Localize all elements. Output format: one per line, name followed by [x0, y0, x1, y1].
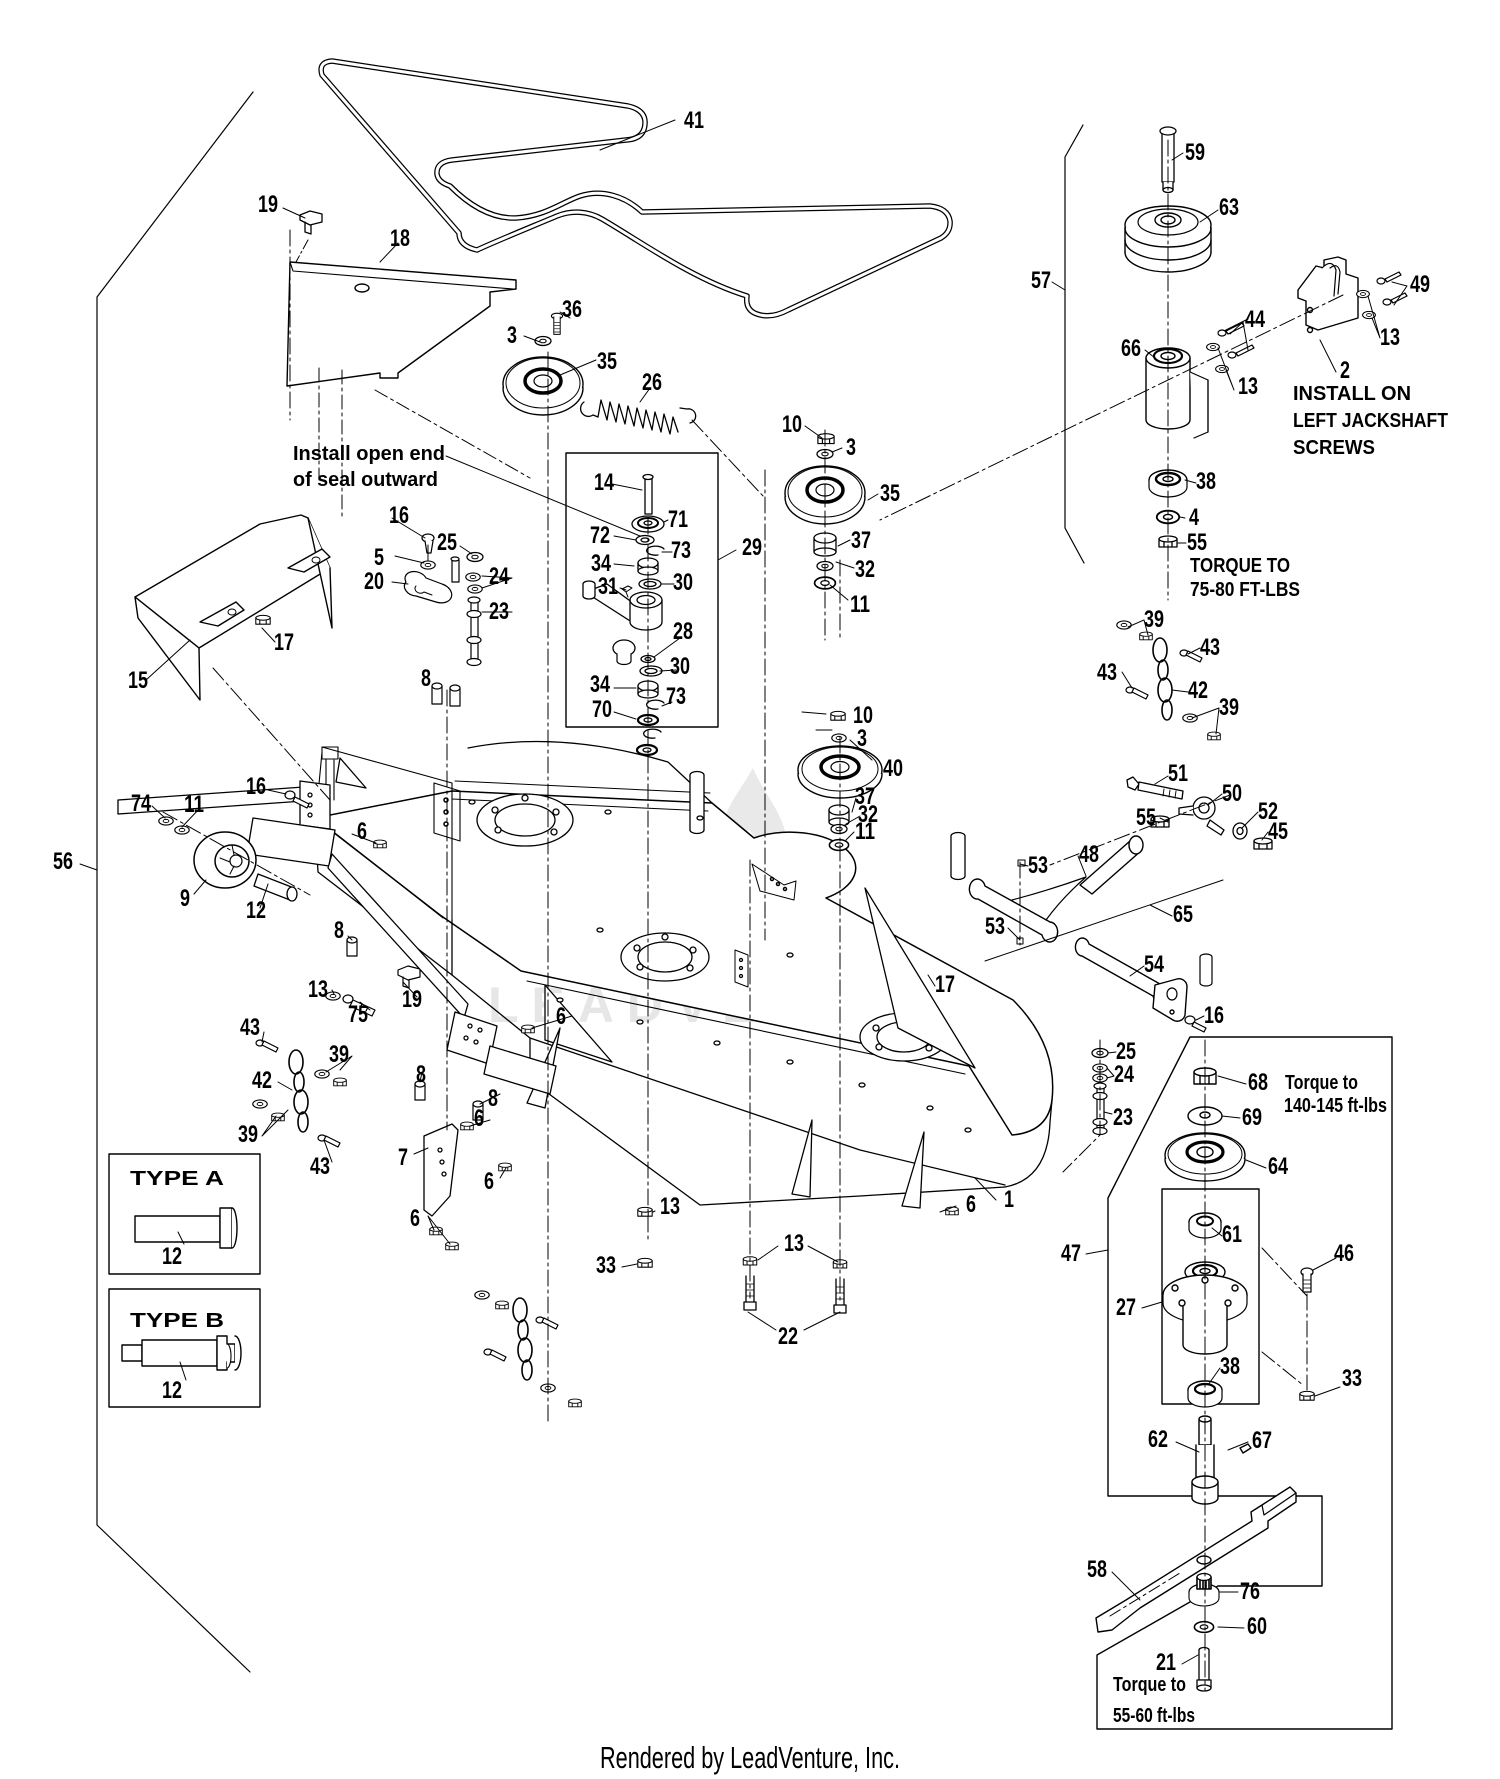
- svg-text:62: 62: [1148, 1426, 1168, 1453]
- svg-text:9: 9: [180, 885, 190, 912]
- svg-text:12: 12: [162, 1243, 182, 1270]
- svg-text:19: 19: [402, 986, 422, 1013]
- svg-text:50: 50: [1222, 780, 1242, 807]
- svg-text:17: 17: [935, 971, 955, 998]
- svg-text:11: 11: [855, 818, 875, 845]
- svg-text:25: 25: [437, 529, 457, 556]
- svg-text:15: 15: [128, 667, 148, 694]
- svg-text:26: 26: [642, 369, 662, 396]
- svg-text:10: 10: [782, 411, 802, 438]
- svg-text:7: 7: [398, 1144, 408, 1171]
- svg-text:64: 64: [1268, 1153, 1288, 1180]
- svg-text:13: 13: [1380, 324, 1400, 351]
- svg-text:43: 43: [310, 1153, 330, 1180]
- svg-text:6: 6: [474, 1105, 484, 1132]
- svg-text:39: 39: [1219, 694, 1239, 721]
- svg-text:60: 60: [1247, 1613, 1267, 1640]
- svg-text:of seal outward: of seal outward: [293, 469, 438, 491]
- svg-text:57: 57: [1031, 267, 1051, 294]
- svg-text:6: 6: [966, 1191, 976, 1218]
- svg-text:29: 29: [742, 534, 762, 561]
- svg-text:16: 16: [1204, 1002, 1224, 1029]
- svg-text:42: 42: [252, 1067, 272, 1094]
- svg-text:37: 37: [851, 527, 871, 554]
- svg-text:54: 54: [1144, 951, 1164, 978]
- svg-text:16: 16: [246, 773, 266, 800]
- svg-text:21: 21: [1156, 1649, 1176, 1676]
- svg-text:6: 6: [484, 1168, 494, 1195]
- svg-text:73: 73: [666, 683, 686, 710]
- svg-text:30: 30: [670, 653, 690, 680]
- svg-text:35: 35: [597, 348, 617, 375]
- svg-text:71: 71: [668, 506, 688, 533]
- svg-text:8: 8: [416, 1061, 426, 1088]
- svg-text:13: 13: [1238, 373, 1258, 400]
- svg-text:58: 58: [1087, 1556, 1107, 1583]
- svg-text:6: 6: [357, 818, 367, 845]
- svg-text:75: 75: [348, 1001, 368, 1028]
- svg-text:3: 3: [857, 725, 867, 752]
- svg-text:76: 76: [1240, 1578, 1260, 1605]
- svg-text:49: 49: [1410, 271, 1430, 298]
- svg-text:28: 28: [673, 618, 693, 645]
- svg-text:SCREWS: SCREWS: [1293, 437, 1375, 459]
- svg-text:45: 45: [1268, 818, 1288, 845]
- svg-text:55-60 ft-lbs: 55-60 ft-lbs: [1113, 1705, 1195, 1727]
- svg-text:36: 36: [562, 296, 582, 323]
- svg-text:4: 4: [1189, 504, 1199, 531]
- svg-text:55: 55: [1187, 529, 1207, 556]
- svg-text:40: 40: [883, 755, 903, 782]
- svg-text:74: 74: [131, 790, 151, 817]
- svg-text:47: 47: [1061, 1240, 1081, 1267]
- svg-text:38: 38: [1220, 1353, 1240, 1380]
- svg-text:63: 63: [1219, 194, 1239, 221]
- svg-text:14: 14: [594, 469, 614, 496]
- svg-text:18: 18: [390, 225, 410, 252]
- svg-text:33: 33: [596, 1252, 616, 1279]
- svg-text:11: 11: [184, 791, 204, 818]
- svg-text:39: 39: [329, 1041, 349, 1068]
- svg-text:Install open end: Install open end: [293, 443, 445, 465]
- svg-text:3: 3: [507, 322, 517, 349]
- svg-text:6: 6: [410, 1205, 420, 1232]
- svg-text:24: 24: [1114, 1061, 1134, 1088]
- svg-text:23: 23: [1113, 1104, 1133, 1131]
- svg-text:59: 59: [1185, 139, 1205, 166]
- svg-text:68: 68: [1248, 1069, 1268, 1096]
- svg-text:3: 3: [846, 434, 856, 461]
- svg-text:46: 46: [1334, 1240, 1354, 1267]
- svg-text:65: 65: [1173, 901, 1193, 928]
- svg-text:19: 19: [258, 191, 278, 218]
- svg-text:13: 13: [784, 1230, 804, 1257]
- svg-text:8: 8: [421, 665, 431, 692]
- svg-text:43: 43: [1097, 659, 1117, 686]
- svg-text:41: 41: [684, 107, 704, 134]
- svg-text:53: 53: [1028, 852, 1048, 879]
- svg-text:20: 20: [364, 568, 384, 595]
- svg-text:48: 48: [1079, 841, 1099, 868]
- svg-text:11: 11: [850, 591, 870, 618]
- svg-text:TYPE A: TYPE A: [130, 1168, 224, 1190]
- svg-text:Rendered by LeadVenture, Inc.: Rendered by LeadVenture, Inc.: [600, 1740, 900, 1775]
- svg-text:2: 2: [1340, 357, 1350, 384]
- svg-text:55: 55: [1136, 804, 1156, 831]
- svg-text:44: 44: [1245, 306, 1265, 333]
- svg-text:Torque to: Torque to: [1285, 1072, 1358, 1094]
- svg-text:42: 42: [1188, 677, 1208, 704]
- svg-text:43: 43: [1200, 634, 1220, 661]
- svg-text:39: 39: [238, 1121, 258, 1148]
- svg-text:16: 16: [389, 502, 409, 529]
- svg-text:73: 73: [671, 537, 691, 564]
- svg-text:TORQUE TO: TORQUE TO: [1190, 555, 1290, 577]
- svg-text:Torque to: Torque to: [1113, 1674, 1186, 1696]
- svg-text:75-80 FT-LBS: 75-80 FT-LBS: [1190, 579, 1300, 601]
- svg-text:34: 34: [590, 671, 610, 698]
- svg-text:69: 69: [1242, 1104, 1262, 1131]
- svg-text:33: 33: [1342, 1365, 1362, 1392]
- svg-text:43: 43: [240, 1014, 260, 1041]
- svg-text:53: 53: [985, 913, 1005, 940]
- svg-text:66: 66: [1121, 335, 1141, 362]
- svg-text:39: 39: [1144, 606, 1164, 633]
- svg-text:31: 31: [598, 573, 618, 600]
- svg-text:12: 12: [246, 897, 266, 924]
- svg-text:140-145 ft-lbs: 140-145 ft-lbs: [1284, 1095, 1387, 1117]
- svg-text:70: 70: [592, 696, 612, 723]
- svg-text:1: 1: [1004, 1186, 1014, 1213]
- svg-text:6: 6: [556, 1003, 566, 1030]
- svg-text:32: 32: [855, 556, 875, 583]
- svg-text:67: 67: [1252, 1427, 1272, 1454]
- svg-text:27: 27: [1116, 1294, 1136, 1321]
- svg-text:38: 38: [1196, 468, 1216, 495]
- svg-text:51: 51: [1168, 760, 1188, 787]
- svg-text:8: 8: [488, 1085, 498, 1112]
- svg-text:8: 8: [334, 917, 344, 944]
- svg-text:61: 61: [1222, 1221, 1242, 1248]
- svg-text:23: 23: [489, 598, 509, 625]
- svg-text:13: 13: [660, 1193, 680, 1220]
- svg-text:24: 24: [489, 563, 509, 590]
- svg-text:12: 12: [162, 1377, 182, 1404]
- svg-text:22: 22: [778, 1323, 798, 1350]
- svg-text:56: 56: [53, 848, 73, 875]
- svg-text:LEFT JACKSHAFT: LEFT JACKSHAFT: [1293, 410, 1448, 432]
- svg-text:13: 13: [308, 976, 328, 1003]
- svg-text:17: 17: [274, 629, 294, 656]
- svg-text:72: 72: [590, 522, 610, 549]
- svg-text:30: 30: [673, 569, 693, 596]
- svg-text:35: 35: [880, 480, 900, 507]
- svg-text:5: 5: [374, 544, 384, 571]
- svg-text:TYPE B: TYPE B: [130, 1310, 224, 1332]
- svg-text:INSTALL ON: INSTALL ON: [1293, 383, 1411, 405]
